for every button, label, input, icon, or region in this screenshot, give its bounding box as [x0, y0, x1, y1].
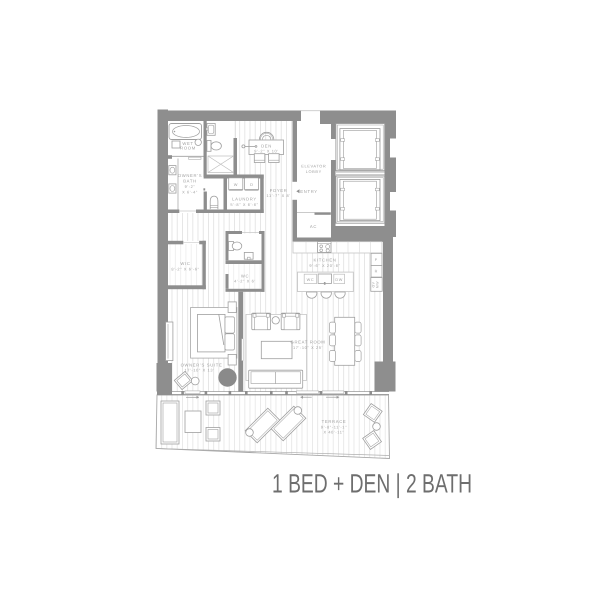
svg-text:D: D	[250, 182, 253, 187]
svg-text:F: F	[375, 258, 378, 262]
svg-text:5'-8" X 6'-6": 5'-8" X 6'-6"	[230, 202, 258, 207]
svg-text:GREAT ROOM: GREAT ROOM	[291, 340, 326, 345]
svg-text:WC: WC	[307, 278, 315, 282]
svg-text:9'-2" X 10': 9'-2" X 10'	[254, 148, 278, 153]
svg-text:8'-2" X 6'-6": 8'-2" X 6'-6"	[171, 267, 199, 272]
svg-text:4'-2" X 6': 4'-2" X 6'	[234, 279, 256, 284]
svg-text:9'-2": 9'-2"	[185, 184, 196, 189]
svg-text:X 6'-4": X 6'-4"	[182, 190, 198, 195]
svg-text:MW: MW	[376, 281, 380, 288]
svg-text:LOBBY: LOBBY	[306, 169, 322, 174]
svg-text:17'-10" X 13': 17'-10" X 13'	[184, 368, 214, 373]
svg-text:1 BED + DEN | 2 BATH: 1 BED + DEN | 2 BATH	[272, 469, 472, 499]
svg-text:ENTRY: ENTRY	[300, 189, 317, 194]
svg-text:ELEVATOR: ELEVATOR	[301, 164, 326, 169]
svg-text:LAUNDRY: LAUNDRY	[232, 197, 257, 202]
svg-text:OWNER'S: OWNER'S	[178, 173, 202, 178]
svg-text:TERRACE: TERRACE	[322, 419, 347, 424]
svg-text:9'-8"-11'-1": 9'-8"-11'-1"	[321, 424, 347, 429]
svg-text:BATH: BATH	[183, 179, 197, 184]
svg-text:WIC: WIC	[180, 261, 190, 266]
svg-text:R: R	[375, 270, 378, 274]
svg-text:9'-6" X 20'-6": 9'-6" X 20'-6"	[309, 263, 340, 268]
svg-text:17'-10" X 25': 17'-10" X 25'	[293, 345, 323, 350]
svg-text:DW: DW	[335, 278, 343, 282]
svg-text:X 40'-11": X 40'-11"	[323, 430, 344, 435]
svg-text:W: W	[234, 182, 238, 187]
svg-text:11'-7" X 8': 11'-7" X 8'	[267, 193, 291, 198]
svg-text:ROOM: ROOM	[180, 145, 196, 150]
svg-text:KITCHEN: KITCHEN	[313, 258, 336, 263]
svg-text:AC: AC	[310, 224, 317, 229]
